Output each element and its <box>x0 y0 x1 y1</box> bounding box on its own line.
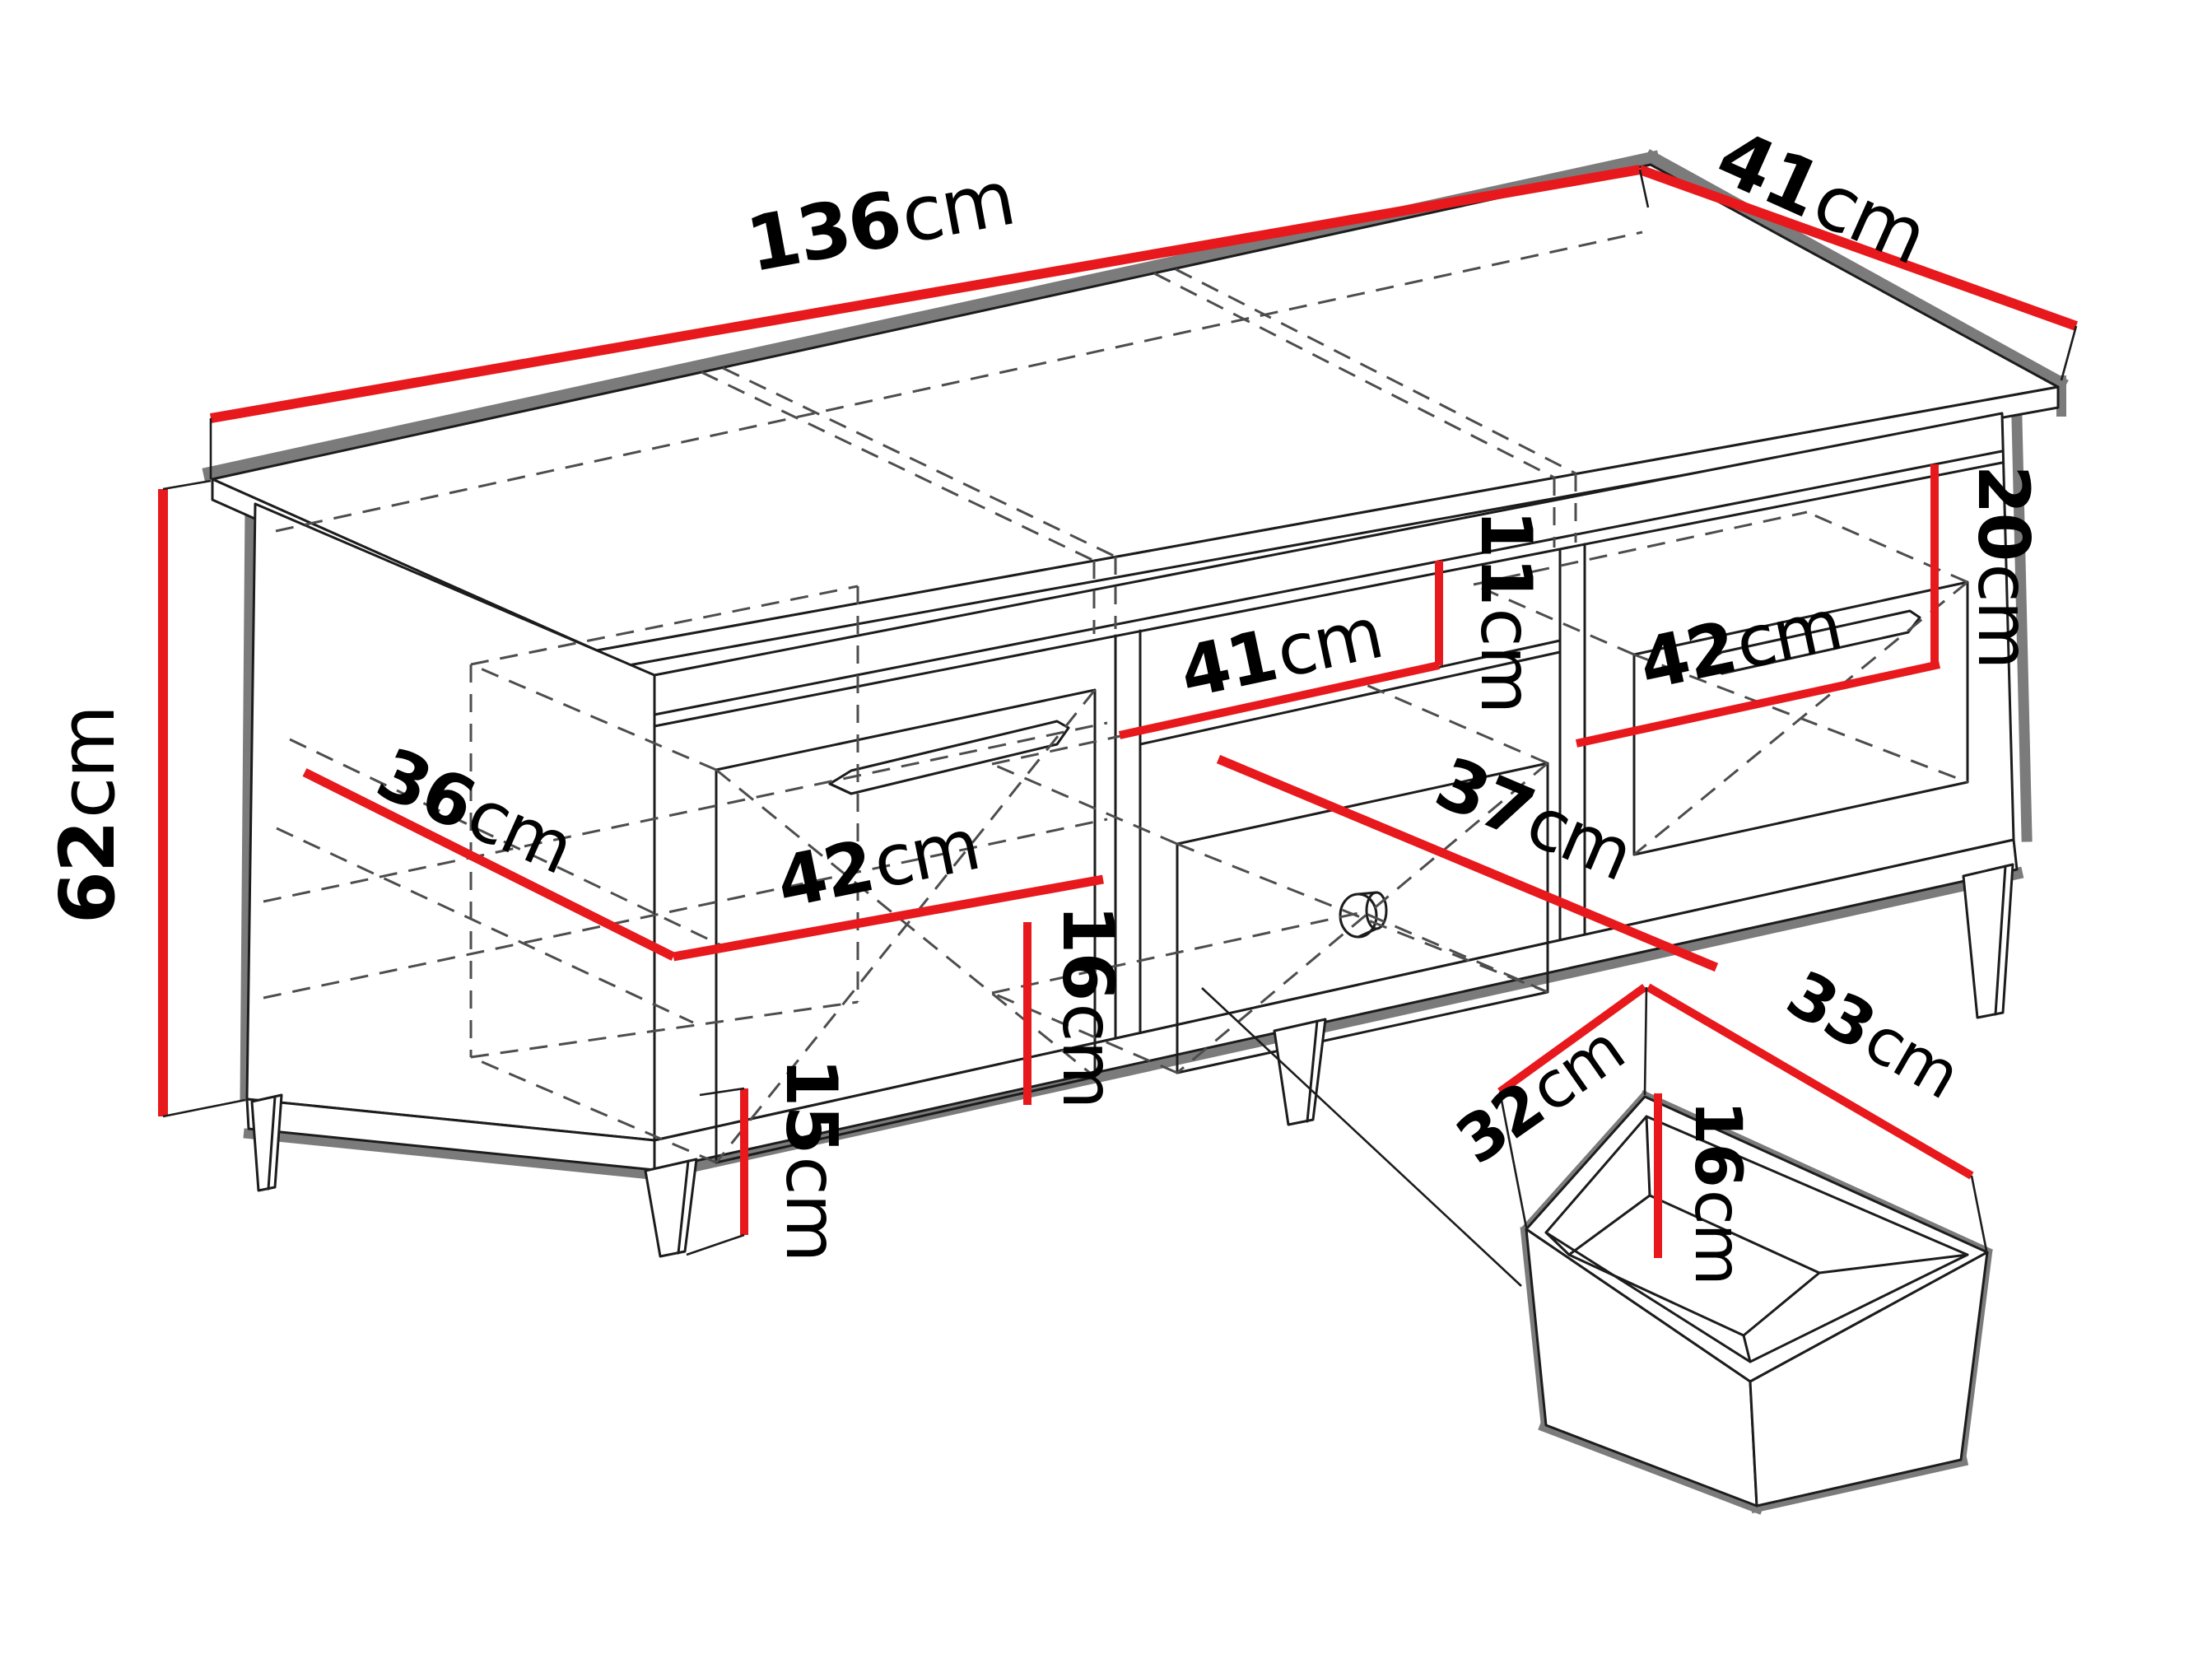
drawer-box-detail <box>1525 1095 1988 1508</box>
box-width-label: 33cm <box>1775 958 1971 1114</box>
front-right-leg <box>1963 864 2013 1018</box>
width-label: 136cm <box>740 154 1020 290</box>
furniture-dimension-diagram: 136cm 41cm 62cm 36cm 42cm 16cm 41cm 11cm… <box>0 0 2212 1659</box>
right-opening-label: 20cm <box>1962 465 2044 669</box>
height-label: 62cm <box>44 706 132 924</box>
diagram-svg: 136cm 41cm 62cm 36cm 42cm 16cm 41cm 11cm… <box>0 0 2212 1659</box>
box-height-label: 16cm <box>1680 1100 1754 1284</box>
left-drawer-height-label: 16cm <box>1046 905 1129 1108</box>
front-left-leg <box>645 1159 696 1256</box>
front-middle-leg <box>1274 1019 1325 1125</box>
leg-height-label: 15cm <box>770 1058 852 1261</box>
back-left-leg <box>252 1095 282 1191</box>
top-gap-label: 11cm <box>1465 510 1547 713</box>
